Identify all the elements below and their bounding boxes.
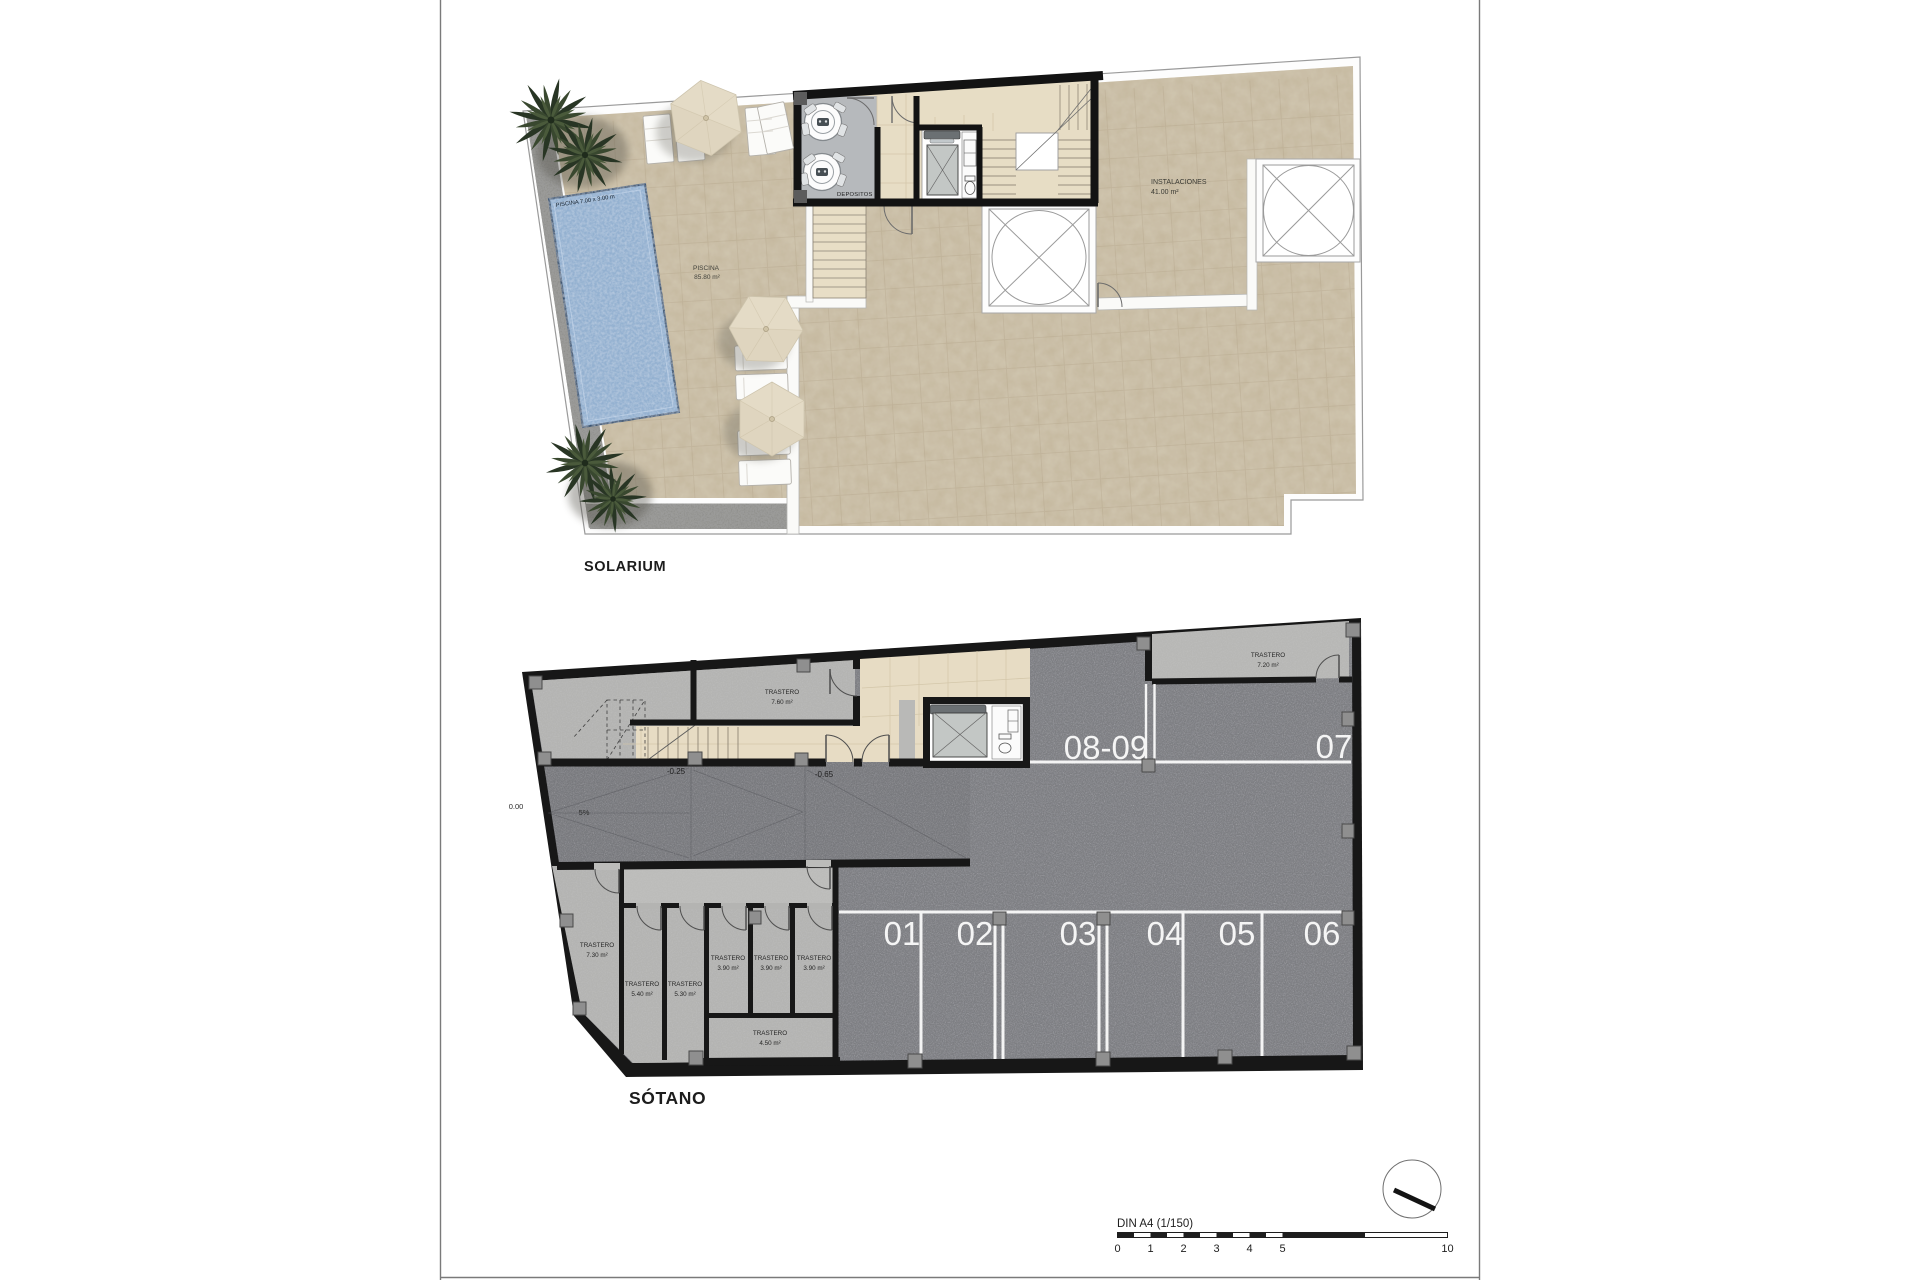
svg-text:10: 10 bbox=[1441, 1243, 1453, 1255]
svg-text:08-09: 08-09 bbox=[1064, 729, 1148, 766]
svg-text:INSTALACIONES: INSTALACIONES bbox=[1151, 179, 1207, 186]
svg-text:0.00: 0.00 bbox=[509, 802, 524, 811]
svg-text:-0.65: -0.65 bbox=[815, 770, 834, 779]
svg-text:3.90 m²: 3.90 m² bbox=[717, 965, 738, 972]
svg-text:TRASTERO: TRASTERO bbox=[754, 955, 788, 962]
svg-text:3.90 m²: 3.90 m² bbox=[803, 965, 824, 972]
svg-text:TRASTERO: TRASTERO bbox=[753, 1030, 787, 1037]
svg-text:TRASTERO: TRASTERO bbox=[625, 981, 659, 988]
svg-text:7.60 m²: 7.60 m² bbox=[771, 699, 792, 706]
svg-text:2: 2 bbox=[1180, 1243, 1186, 1255]
svg-text:TRASTERO: TRASTERO bbox=[668, 981, 702, 988]
svg-text:02: 02 bbox=[957, 915, 994, 952]
svg-text:5.40 m²: 5.40 m² bbox=[631, 991, 652, 998]
svg-text:5.30 m²: 5.30 m² bbox=[674, 991, 695, 998]
svg-text:SOLARIUM: SOLARIUM bbox=[584, 559, 666, 575]
svg-text:03: 03 bbox=[1060, 915, 1097, 952]
svg-text:TRASTERO: TRASTERO bbox=[711, 955, 745, 962]
svg-text:4.50 m²: 4.50 m² bbox=[759, 1040, 780, 1047]
svg-text:41.00 m²: 41.00 m² bbox=[1151, 189, 1179, 196]
svg-text:7.20 m²: 7.20 m² bbox=[1257, 662, 1278, 669]
svg-text:04: 04 bbox=[1147, 915, 1184, 952]
svg-text:0: 0 bbox=[1114, 1243, 1120, 1255]
svg-text:4: 4 bbox=[1246, 1243, 1252, 1255]
svg-text:-0.25: -0.25 bbox=[667, 767, 686, 776]
svg-text:3: 3 bbox=[1213, 1243, 1219, 1255]
svg-text:TRASTERO: TRASTERO bbox=[580, 942, 614, 949]
svg-text:TRASTERO: TRASTERO bbox=[797, 955, 831, 962]
svg-text:85.80 m²: 85.80 m² bbox=[694, 274, 720, 281]
svg-text:SÓTANO: SÓTANO bbox=[629, 1087, 706, 1108]
svg-text:PISCINA: PISCINA bbox=[693, 265, 720, 272]
svg-text:DEPOSITOS: DEPOSITOS bbox=[837, 192, 873, 198]
svg-text:7.30 m²: 7.30 m² bbox=[586, 952, 607, 959]
svg-text:5%: 5% bbox=[579, 808, 590, 817]
svg-text:TRASTERO: TRASTERO bbox=[1251, 652, 1285, 659]
svg-text:01: 01 bbox=[884, 915, 921, 952]
svg-text:06: 06 bbox=[1304, 915, 1341, 952]
svg-text:1: 1 bbox=[1147, 1243, 1153, 1255]
svg-text:DIN A4 (1/150): DIN A4 (1/150) bbox=[1117, 1218, 1193, 1230]
svg-text:07: 07 bbox=[1316, 728, 1353, 765]
svg-text:3.90 m²: 3.90 m² bbox=[760, 965, 781, 972]
svg-text:5: 5 bbox=[1279, 1243, 1285, 1255]
svg-text:TRASTERO: TRASTERO bbox=[765, 689, 799, 696]
svg-text:05: 05 bbox=[1219, 915, 1256, 952]
